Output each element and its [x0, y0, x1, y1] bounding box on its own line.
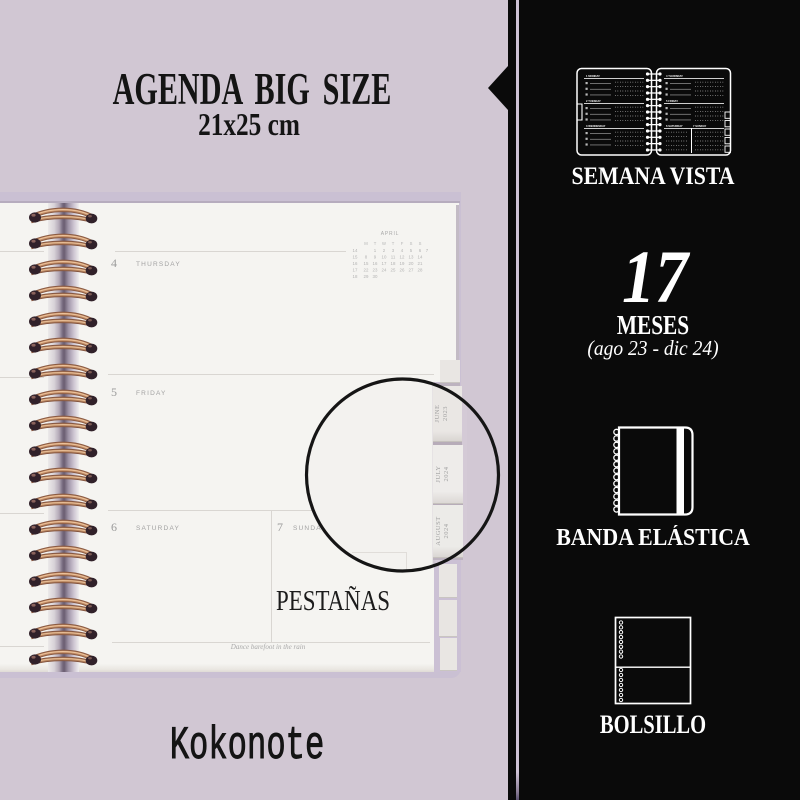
svg-text:28: 28 [418, 268, 423, 273]
svg-text:14: 14 [353, 248, 358, 253]
svg-text:S: S [410, 241, 413, 246]
svg-text:27: 27 [409, 268, 414, 273]
svg-text:2: 2 [383, 248, 386, 253]
svg-text:25: 25 [391, 268, 396, 273]
svg-text:8: 8 [365, 255, 368, 260]
svg-text:4 THURSDAY: 4 THURSDAY [666, 74, 683, 78]
svg-text:T: T [374, 241, 377, 246]
svg-text:14: 14 [418, 255, 423, 260]
svg-text:11: 11 [391, 255, 396, 260]
svg-text:15: 15 [364, 261, 369, 266]
svg-text:1: 1 [374, 248, 377, 253]
svg-text:24: 24 [382, 268, 387, 273]
svg-text:22: 22 [364, 268, 369, 273]
svg-text:17: 17 [353, 268, 358, 273]
svg-text:20: 20 [409, 261, 414, 266]
svg-text:6: 6 [419, 248, 422, 253]
svg-text:4: 4 [401, 248, 404, 253]
svg-text:18: 18 [353, 274, 358, 279]
svg-text:17: 17 [382, 261, 387, 266]
svg-text:T: T [392, 241, 395, 246]
svg-text:W: W [382, 241, 386, 246]
svg-text:1 MONDAY: 1 MONDAY [586, 74, 600, 78]
svg-text:15: 15 [353, 255, 358, 260]
svg-text:30: 30 [373, 274, 378, 279]
svg-text:2 TUESDAY: 2 TUESDAY [586, 99, 601, 103]
svg-text:APRIL: APRIL [381, 231, 399, 237]
svg-text:3 WEDNESDAY: 3 WEDNESDAY [586, 124, 606, 128]
svg-text:29: 29 [364, 274, 369, 279]
svg-text:10: 10 [382, 255, 387, 260]
svg-text:3: 3 [392, 248, 395, 253]
svg-text:6 SATURDAY: 6 SATURDAY [666, 124, 683, 128]
svg-text:19: 19 [400, 261, 405, 266]
svg-text:21: 21 [418, 261, 423, 266]
svg-text:M: M [364, 241, 368, 246]
svg-text:16: 16 [353, 261, 358, 266]
svg-text:5 FRIDAY: 5 FRIDAY [666, 99, 678, 103]
svg-text:16: 16 [373, 261, 378, 266]
svg-text:13: 13 [409, 255, 414, 260]
svg-text:F: F [401, 241, 404, 246]
svg-text:5: 5 [410, 248, 413, 253]
svg-text:23: 23 [373, 268, 378, 273]
svg-text:9: 9 [374, 255, 377, 260]
svg-text:26: 26 [400, 268, 405, 273]
svg-text:7 SUNDAY: 7 SUNDAY [693, 124, 707, 128]
svg-text:18: 18 [391, 261, 396, 266]
svg-text:12: 12 [400, 255, 405, 260]
svg-text:7: 7 [426, 248, 429, 253]
svg-text:S: S [419, 241, 422, 246]
